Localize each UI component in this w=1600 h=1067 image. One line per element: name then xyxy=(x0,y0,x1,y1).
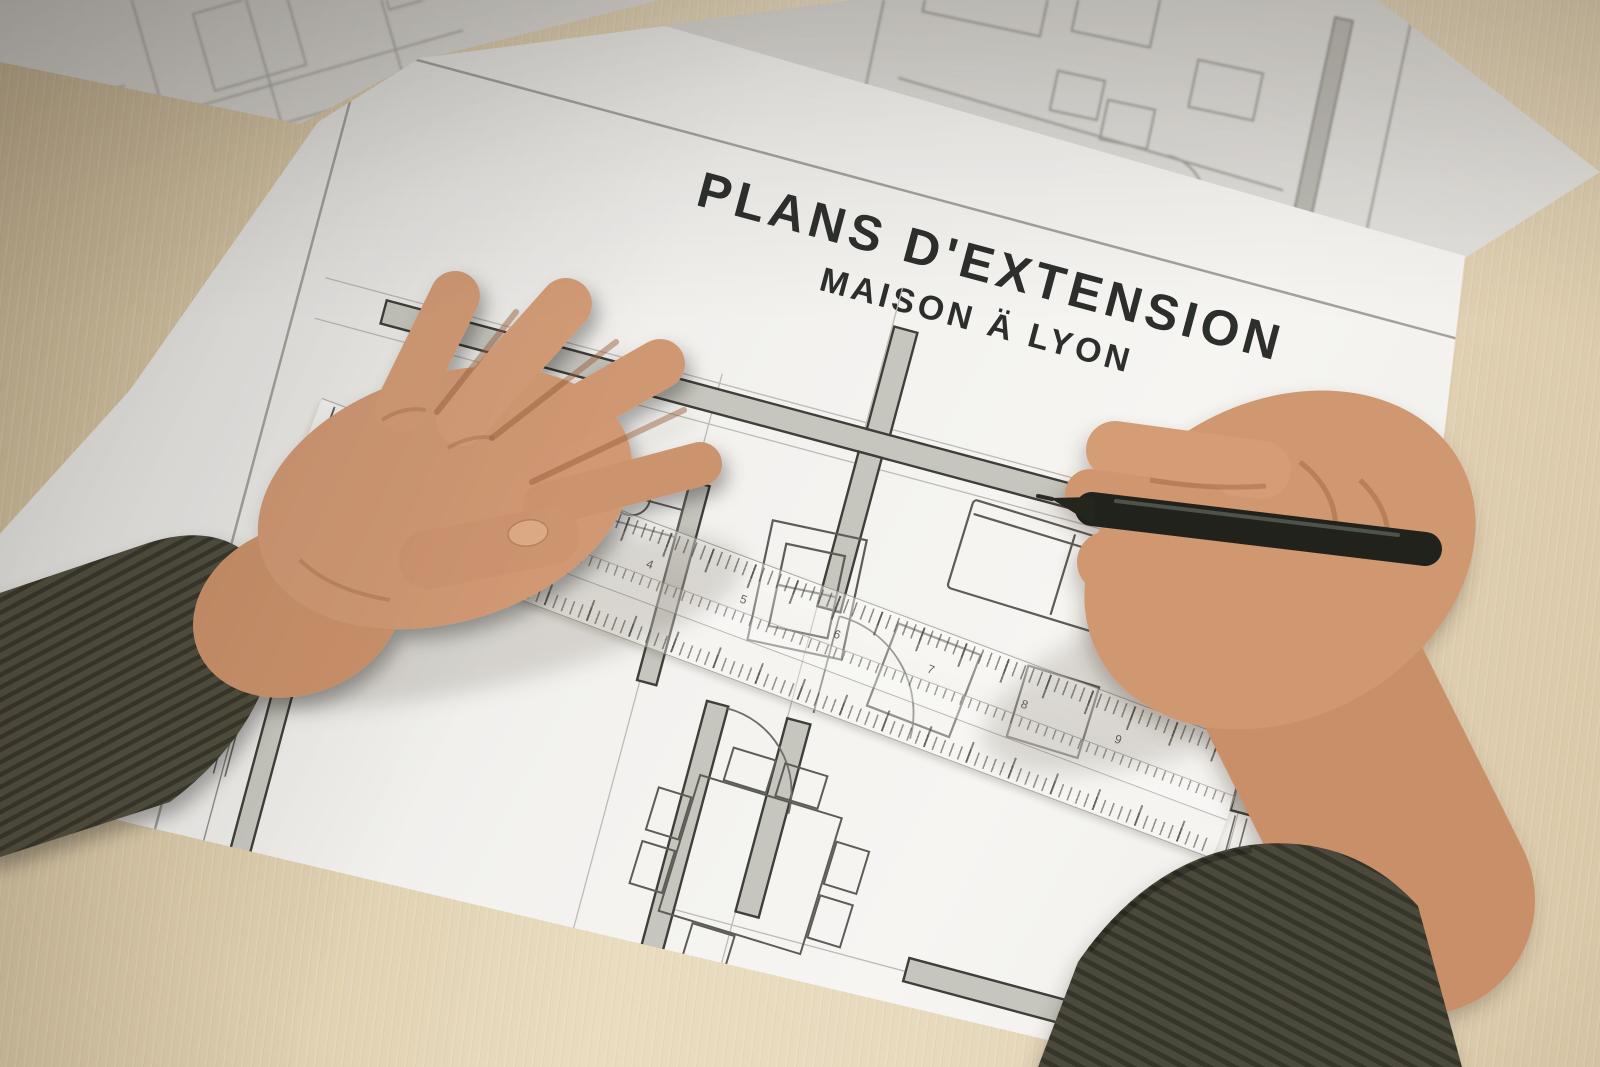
right-index-finger xyxy=(1115,450,1262,470)
right-hand-layer xyxy=(0,0,1600,1067)
pen-nib xyxy=(1038,496,1052,499)
right-thumb xyxy=(1108,562,1232,578)
photo-scene: PLANS D'EXTENSION MAISON Ä LYON xyxy=(0,0,1600,1067)
pen-tip-cone xyxy=(1050,497,1096,526)
